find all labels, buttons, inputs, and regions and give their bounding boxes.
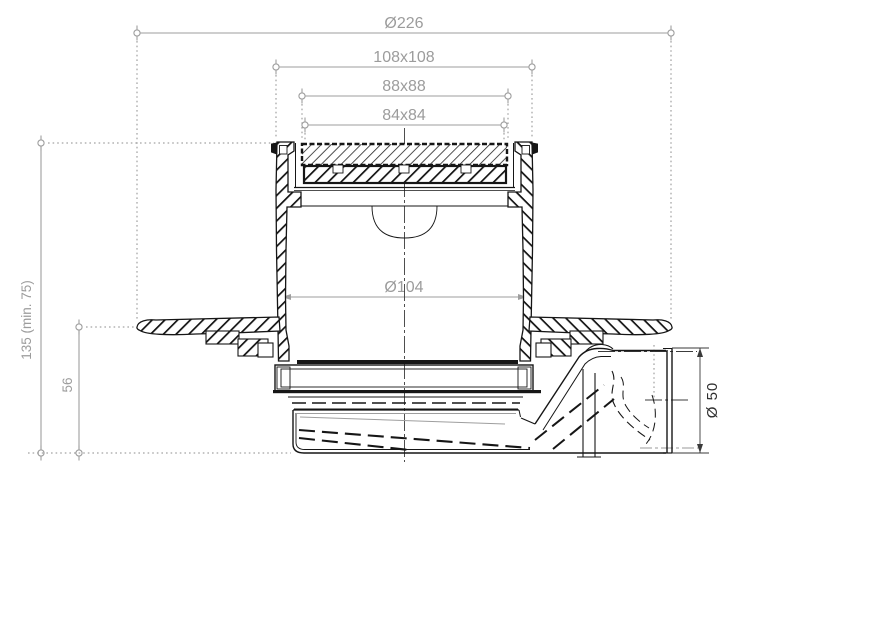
dimension-outlet-diameter: Ø 50 xyxy=(672,348,721,453)
body-wall-left xyxy=(137,142,301,361)
dimension-installation-height: 135 (min. 75) xyxy=(19,136,274,461)
dim-label-installation-height: 135 (min. 75) xyxy=(19,280,34,360)
dim-label-outlet-diameter: Ø 50 xyxy=(704,382,721,419)
dim-label-flange-height: 56 xyxy=(60,377,75,392)
floor-drain-section-drawing: Ø226 108x108 88x88 84x84 135 (min. 75) 5… xyxy=(0,0,887,624)
dim-label-grate-outer: 88x88 xyxy=(382,78,426,95)
outlet-pipe xyxy=(521,344,672,457)
technical-drawing-page: Ø226 108x108 88x88 84x84 135 (min. 75) 5… xyxy=(0,0,887,624)
grate xyxy=(302,144,507,183)
dim-label-grate-inner: 84x84 xyxy=(382,107,426,124)
dim-label-frame-outer: 108x108 xyxy=(373,49,434,66)
dim-label-overall-width: Ø226 xyxy=(384,15,423,32)
clamping-ring xyxy=(273,360,541,409)
drain-tray xyxy=(293,410,666,453)
body-wall-right xyxy=(508,142,672,361)
